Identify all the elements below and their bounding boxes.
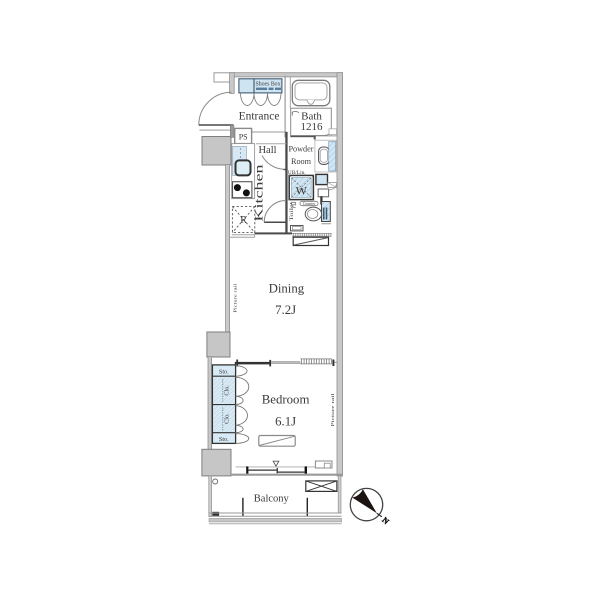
svg-text:Sto.: Sto.	[219, 436, 229, 443]
svg-text:W: W	[296, 184, 308, 198]
svg-text:Picture rail: Picture rail	[233, 283, 238, 313]
svg-text:Counter: Counter	[303, 202, 316, 206]
svg-text:R: R	[240, 215, 247, 226]
svg-text:Dining: Dining	[269, 282, 305, 296]
svg-text:Sto.: Sto.	[219, 369, 229, 376]
svg-text:Hall: Hall	[258, 145, 276, 156]
svg-text:Room: Room	[291, 157, 312, 166]
svg-text:Kitchen: Kitchen	[252, 165, 266, 222]
svg-text:Balcony: Balcony	[254, 493, 290, 504]
svg-text:Entrance: Entrance	[239, 111, 280, 123]
svg-text:Clo.: Clo.	[224, 413, 231, 424]
svg-text:Picture rail: Picture rail	[330, 392, 335, 426]
svg-text:PS: PS	[239, 133, 248, 142]
svg-text:Powder: Powder	[288, 145, 313, 154]
svg-text:Shoes Box: Shoes Box	[256, 82, 281, 88]
svg-text:7.2J: 7.2J	[275, 303, 296, 317]
svg-text:Clo.: Clo.	[224, 385, 231, 396]
svg-text:1216: 1216	[301, 121, 324, 133]
svg-text:Bedroom: Bedroom	[262, 393, 310, 407]
svg-text:6.1J: 6.1J	[275, 415, 296, 429]
